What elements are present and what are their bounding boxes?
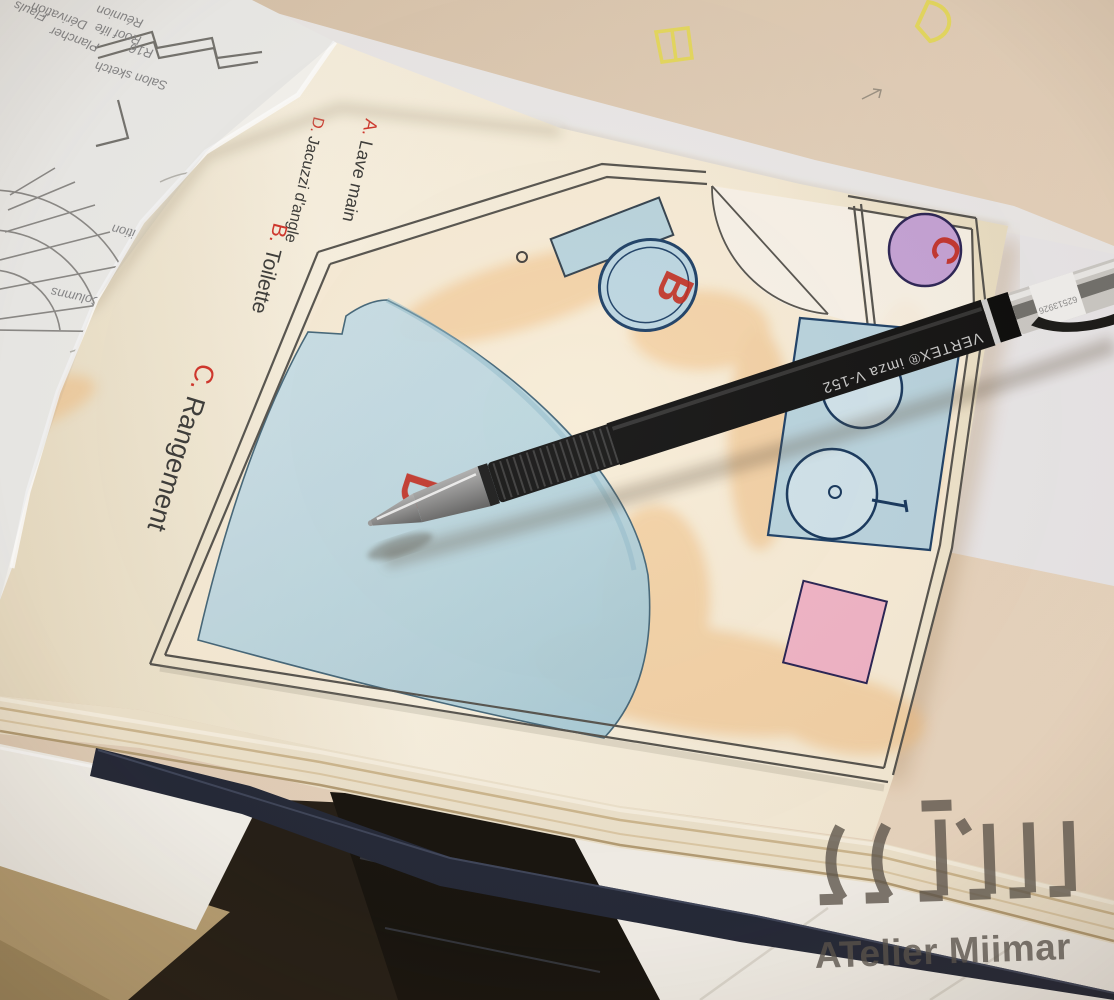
scene-canvas: D B C A A. Lave main D. Jacuzzi d'angle …	[0, 0, 1114, 1000]
washbasin-lower	[787, 449, 877, 539]
photo-scene: D B C A A. Lave main D. Jacuzzi d'angle …	[0, 0, 1114, 1000]
